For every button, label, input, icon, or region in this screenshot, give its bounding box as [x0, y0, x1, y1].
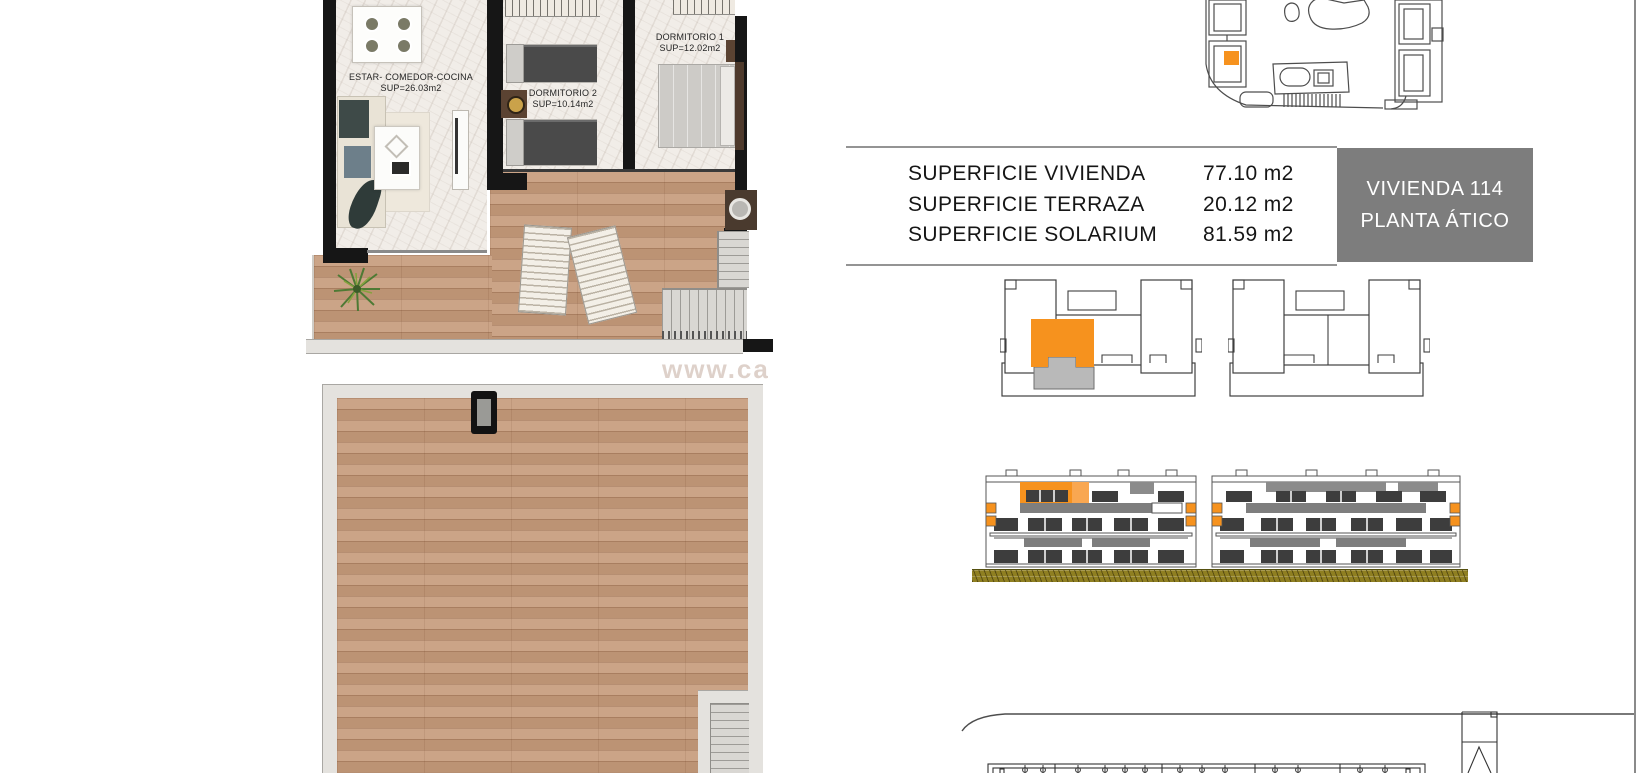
elevation-ground-left [972, 569, 1208, 582]
tv-screen [455, 118, 458, 174]
bed1-headboard [735, 62, 744, 150]
unit-badge-line1: VIVIENDA 114 [1367, 178, 1504, 201]
room-area: SUP=26.03m2 [336, 83, 486, 94]
table-row-label: SUPERFICIE VIVIENDA [908, 162, 1145, 186]
wall-living-bedroom2 [487, 0, 503, 175]
room-label-living: ESTAR- COMEDOR-COCINA SUP=26.03m2 [336, 72, 486, 94]
solarium-floor [337, 398, 748, 773]
dining-plate [364, 38, 380, 54]
bed2a-pillow [506, 44, 524, 83]
sofa-cushion [339, 100, 369, 138]
room-name: DORMITORIO 1 [640, 32, 740, 43]
bed2a-duvet [524, 45, 597, 82]
table-row-value: 81.59 m2 [1203, 223, 1294, 247]
solarium-border-right [748, 384, 763, 773]
site-plan-bottom [940, 690, 1638, 773]
sheet-border-right [1634, 0, 1636, 773]
wardrobe-bedroom1 [673, 0, 735, 15]
skylight [471, 391, 497, 434]
wall-left [323, 0, 336, 250]
elevation-left [980, 468, 1202, 568]
plan-sheet: ESTAR- COMEDOR-COCINA SUP=26.03m2 DORMIT… [0, 0, 1638, 773]
window-line-bedrooms [503, 169, 735, 172]
table-row-value: 77.10 m2 [1203, 162, 1294, 186]
sun-lounger [518, 224, 572, 315]
room-area: SUP=10.14m2 [503, 99, 623, 110]
wardrobe-bedroom2 [505, 0, 600, 17]
elevation-right [1206, 468, 1466, 568]
table-rule-top [846, 146, 1337, 148]
stairs-solarium [710, 703, 749, 773]
room-name: ESTAR- COMEDOR-COCINA [336, 72, 486, 83]
room-label-bedroom1: DORMITORIO 1 SUP=12.02m2 [640, 32, 740, 54]
watermark: www.ca [662, 354, 770, 385]
dining-table [352, 6, 422, 63]
key-plan-left [1000, 279, 1202, 401]
wall-bedroom2-bedroom1 [623, 0, 635, 171]
table-row-label: SUPERFICIE SOLARIUM [908, 223, 1157, 247]
table-row-label: SUPERFICIE TERRAZA [908, 193, 1145, 217]
skylight-glass [477, 399, 491, 426]
room-label-bedroom2: DORMITORIO 2 SUP=10.14m2 [503, 88, 623, 110]
table-row-value: 20.12 m2 [1203, 193, 1294, 217]
terrace-edge-band [306, 339, 743, 354]
stairs-terrace-upper [717, 231, 749, 288]
terrace-edge-end [743, 339, 773, 352]
wall-living-foot [487, 173, 527, 190]
bed1-pillows [720, 66, 735, 146]
key-plan-right [1228, 279, 1430, 401]
plant [330, 265, 384, 313]
stairs-hatch [662, 331, 747, 339]
elevation-ground-right [1200, 569, 1468, 582]
unit-badge-line2: PLANTA ÁTICO [1360, 210, 1509, 233]
jacuzzi-ring [729, 198, 751, 220]
dining-plate [396, 16, 412, 32]
dining-plate [396, 38, 412, 54]
dining-plate [364, 16, 380, 32]
solarium-border-left [322, 384, 338, 773]
room-name: DORMITORIO 2 [503, 88, 623, 99]
bed2b-pillow [506, 119, 524, 166]
table-rule-bottom [846, 264, 1337, 266]
sofa-cushion [344, 146, 371, 178]
room-area: SUP=12.02m2 [640, 43, 740, 54]
wall-left-foot [323, 248, 368, 263]
unit-badge: VIVIENDA 114 PLANTA ÁTICO [1337, 148, 1533, 262]
jacuzzi [725, 190, 757, 230]
site-plan-top [1140, 0, 1638, 113]
glass-door-living [367, 250, 487, 253]
bed2b-duvet [524, 120, 597, 165]
site-unit-marker [1224, 51, 1239, 65]
coffee-table-tray [390, 160, 411, 176]
